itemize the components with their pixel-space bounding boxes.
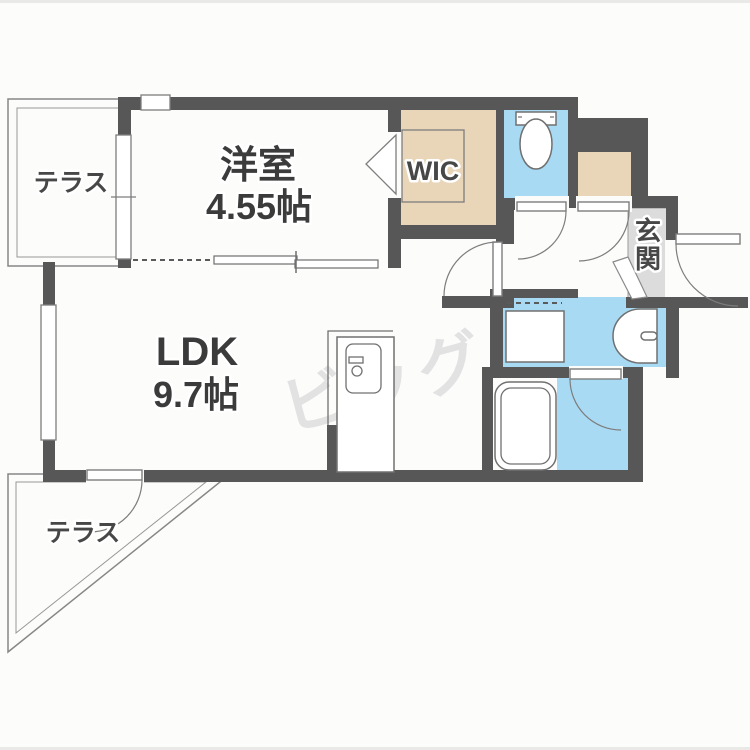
terrace-bottom-label: テラス bbox=[46, 519, 121, 547]
terrace-bottom-outer-rail bbox=[8, 474, 230, 652]
entrance-label: 玄 関 bbox=[635, 216, 661, 274]
toilet-door-leaf bbox=[517, 202, 566, 211]
wall-washroom-left bbox=[490, 296, 503, 367]
sliding-door-panel-2 bbox=[295, 260, 378, 268]
western-room-size-label: 4.55帖 bbox=[206, 186, 312, 227]
wic-folding-door-icon bbox=[366, 135, 396, 194]
wall-hall-left-stub bbox=[496, 198, 514, 244]
hall-door-swing-arc bbox=[444, 242, 498, 296]
wall-right-exterior bbox=[666, 297, 679, 378]
terrace-top-label: テラス bbox=[34, 169, 109, 197]
terrace-bottom-left bbox=[8, 474, 230, 652]
storage-closet-floor bbox=[577, 152, 631, 200]
kitchen-sink-icon bbox=[328, 331, 394, 472]
wic-label: WIC bbox=[407, 156, 459, 186]
wall-top-right-step bbox=[578, 118, 648, 152]
wall-top bbox=[118, 97, 578, 110]
wall-bath-right bbox=[628, 378, 643, 472]
bath-door-leaf bbox=[570, 369, 621, 379]
storage-door-swing-arc bbox=[579, 211, 629, 261]
ldk-label: LDK bbox=[156, 330, 238, 374]
front-door-opening bbox=[665, 240, 679, 297]
wall-wic-bottom bbox=[388, 225, 498, 239]
terrace-door-leaf bbox=[87, 470, 142, 480]
front-door-swing-arc bbox=[676, 244, 738, 306]
wall-bath-left bbox=[482, 378, 493, 472]
sliding-door-panel-1 bbox=[214, 256, 297, 264]
western-room-label: 洋室 bbox=[220, 144, 296, 187]
bathtub-icon bbox=[495, 382, 556, 470]
wall-toilet-right bbox=[568, 97, 578, 208]
window-ldk-left bbox=[41, 305, 56, 440]
storage-door-leaf bbox=[578, 202, 629, 211]
entrance-label-char-1: 玄 bbox=[635, 216, 661, 246]
terrace-bottom-inner-rail bbox=[16, 482, 206, 633]
wall-entrance-top bbox=[636, 196, 678, 208]
ldk-size-label: 9.7帖 bbox=[153, 374, 239, 415]
front-door-leaf bbox=[676, 234, 740, 244]
entrance-label-char-2: 関 bbox=[635, 244, 661, 274]
wall-wic-toilet bbox=[496, 110, 504, 198]
bathroom-floor-blue bbox=[557, 378, 628, 470]
windows bbox=[41, 95, 170, 440]
paper-edge-top bbox=[0, 0, 750, 3]
window-top-wall bbox=[141, 95, 170, 110]
hall-door-leaf bbox=[493, 242, 502, 296]
washer-space-icon bbox=[506, 311, 564, 362]
floorplan-canvas: ビッグ bbox=[0, 0, 750, 750]
wall-washroom-top bbox=[490, 289, 578, 298]
floorplan-drawing: ビッグ bbox=[0, 0, 750, 750]
toilet-door-swing-arc bbox=[518, 211, 566, 259]
